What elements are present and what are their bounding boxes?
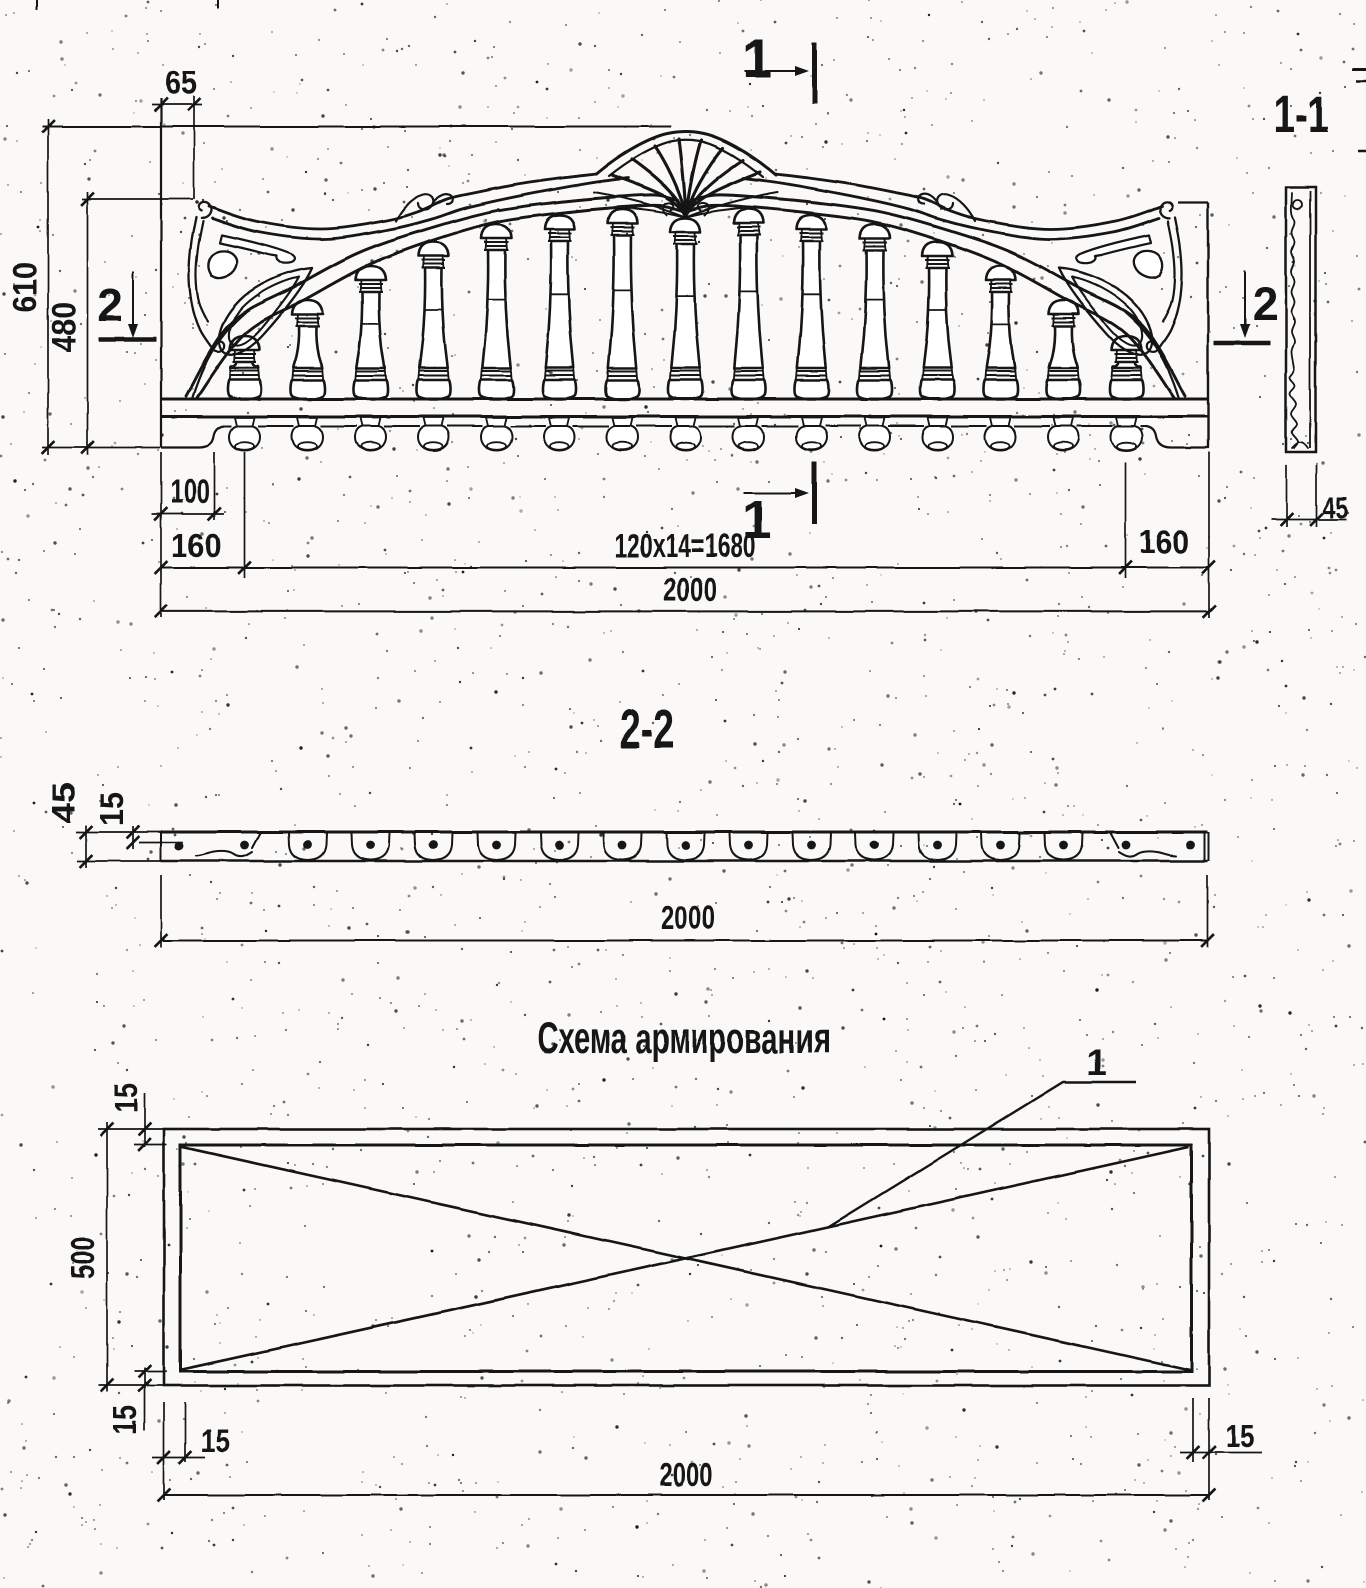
svg-text:2000: 2000 bbox=[664, 571, 717, 608]
svg-text:15: 15 bbox=[201, 1423, 230, 1459]
svg-text:100: 100 bbox=[170, 473, 210, 510]
svg-text:2: 2 bbox=[1252, 278, 1278, 330]
svg-text:1: 1 bbox=[742, 490, 772, 550]
svg-text:1-1: 1-1 bbox=[1273, 86, 1329, 144]
svg-text:2000: 2000 bbox=[662, 899, 715, 936]
svg-text:1: 1 bbox=[1087, 1042, 1108, 1083]
svg-text:15: 15 bbox=[107, 1405, 143, 1435]
svg-text:15: 15 bbox=[108, 1083, 144, 1113]
svg-text:15: 15 bbox=[1226, 1418, 1255, 1454]
svg-text:Схема армирования: Схема армирования bbox=[538, 1014, 831, 1063]
svg-text:45: 45 bbox=[1322, 490, 1348, 525]
svg-text:2: 2 bbox=[97, 279, 123, 331]
svg-text:45: 45 bbox=[46, 783, 82, 824]
svg-text:160: 160 bbox=[1139, 523, 1189, 560]
svg-text:2-2: 2-2 bbox=[620, 698, 674, 760]
svg-text:15: 15 bbox=[94, 792, 130, 826]
svg-text:500: 500 bbox=[64, 1237, 101, 1279]
svg-text:480: 480 bbox=[45, 302, 82, 352]
svg-text:65: 65 bbox=[165, 64, 197, 101]
svg-text:1: 1 bbox=[742, 29, 772, 89]
svg-text:2000: 2000 bbox=[660, 1456, 713, 1493]
svg-text:120x14=1680: 120x14=1680 bbox=[615, 527, 756, 564]
svg-text:610: 610 bbox=[6, 262, 43, 312]
svg-text:160: 160 bbox=[171, 527, 221, 564]
